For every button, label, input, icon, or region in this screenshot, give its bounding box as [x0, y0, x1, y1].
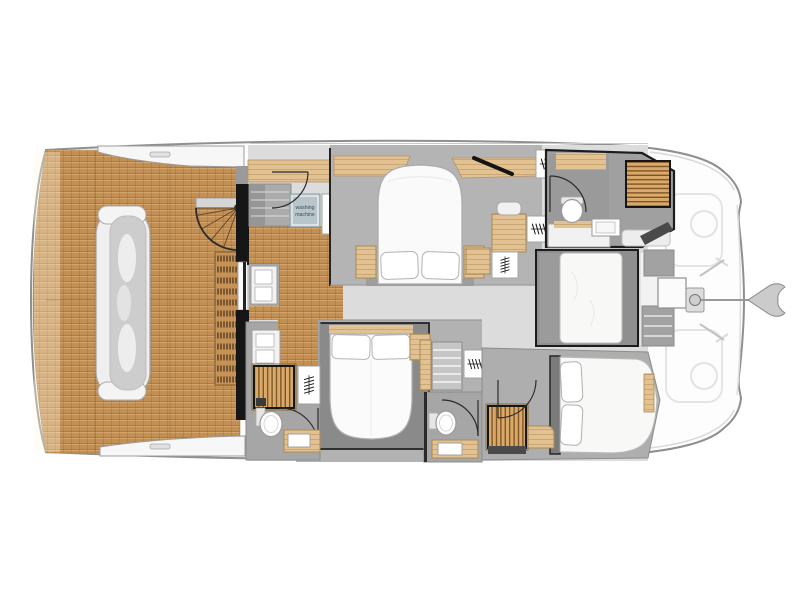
step-handle-top — [150, 152, 170, 157]
counter-bath-lc — [432, 440, 478, 458]
deck-hatch — [658, 278, 686, 308]
deck-light-patch — [34, 152, 60, 452]
galley-wood-band — [248, 160, 330, 182]
bath-ll-sink-unit — [252, 330, 280, 366]
bathroom-lower-left — [246, 320, 320, 460]
teak-grating — [215, 252, 239, 385]
bathroom-wood-band — [556, 153, 606, 170]
toilet-upper — [561, 197, 583, 223]
bath-lc-wall — [424, 392, 427, 462]
cockpit-sofa — [96, 206, 150, 400]
galley-unit — [249, 184, 291, 226]
wardrobe-bath-ll — [298, 366, 320, 404]
forepeak-block-top — [644, 250, 674, 276]
anchor — [748, 284, 785, 317]
bathroom-upper-right — [546, 150, 674, 247]
shower-lower-left — [252, 364, 296, 410]
aft-deck-cockpit — [33, 146, 261, 456]
berth-mid-right — [536, 250, 638, 346]
washing-machine-label-line2: machine — [295, 212, 315, 218]
shower-blinds — [626, 161, 670, 207]
yacht-floor-plan: washing machine — [0, 0, 797, 597]
forepeak-steps — [642, 306, 674, 346]
vanity — [548, 219, 620, 247]
washing-machine-label-line1: washing — [295, 205, 314, 211]
cabin-upper — [330, 145, 564, 286]
wardrobe-upper-3 — [492, 252, 518, 278]
bathroom-lower-center — [424, 392, 482, 462]
counter-bath-ll — [284, 430, 320, 452]
bed-shelf-wood — [644, 374, 654, 412]
washing-machine: washing machine — [290, 194, 320, 227]
bedside-table-left — [356, 246, 376, 278]
vanity-desk — [492, 202, 526, 252]
cabin-lower-right — [482, 348, 660, 460]
corner-seat-wood — [528, 426, 554, 448]
cabinet-wood-box — [466, 248, 490, 274]
berth-platform — [539, 253, 561, 343]
floor-plan-canvas: washing machine — [0, 0, 797, 597]
headboard-wood — [329, 325, 413, 334]
step-handle-bottom — [150, 444, 170, 449]
hull-stairs — [420, 340, 462, 396]
shower-lower-right — [486, 404, 528, 454]
salon-wood-floor-ext — [278, 320, 318, 366]
berth-mattress — [560, 253, 622, 343]
galley-sink-unit — [249, 264, 279, 306]
